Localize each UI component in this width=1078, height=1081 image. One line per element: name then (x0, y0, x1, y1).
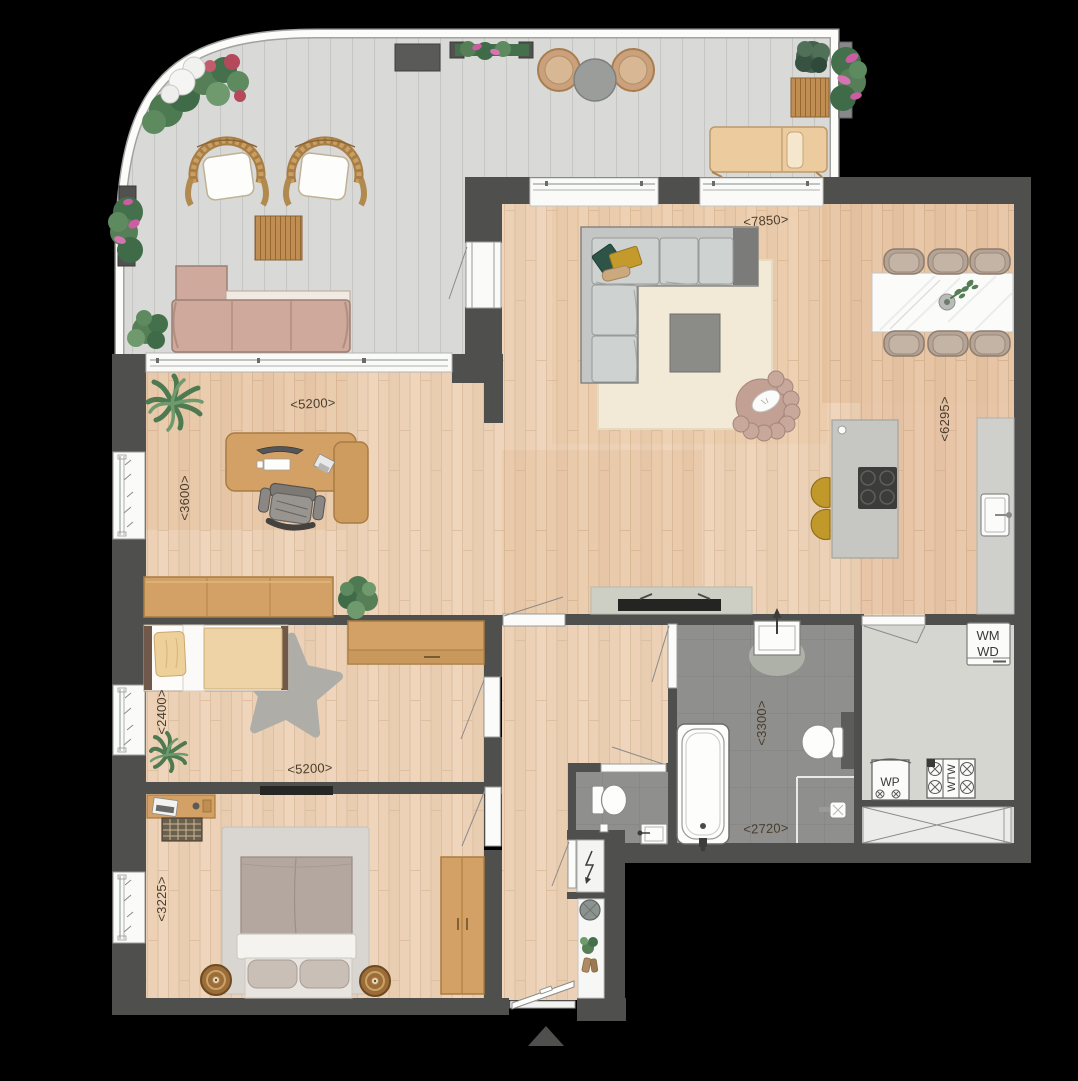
svg-text:<3600>: <3600> (177, 475, 192, 520)
svg-text:<5200>: <5200> (290, 395, 336, 412)
svg-text:<7850>: <7850> (743, 211, 789, 229)
svg-text:WP: WP (880, 775, 899, 789)
svg-text:<3300>: <3300> (754, 700, 769, 745)
svg-text:<6295>: <6295> (937, 396, 952, 441)
svg-text:<5200>: <5200> (287, 760, 333, 777)
svg-text:<2720>: <2720> (743, 820, 789, 837)
svg-text:<3225>: <3225> (154, 876, 169, 921)
svg-text:WTW: WTW (946, 764, 958, 792)
svg-text:WM: WM (976, 628, 999, 643)
svg-text:WD: WD (977, 644, 999, 659)
svg-text:<2400>: <2400> (154, 689, 169, 734)
